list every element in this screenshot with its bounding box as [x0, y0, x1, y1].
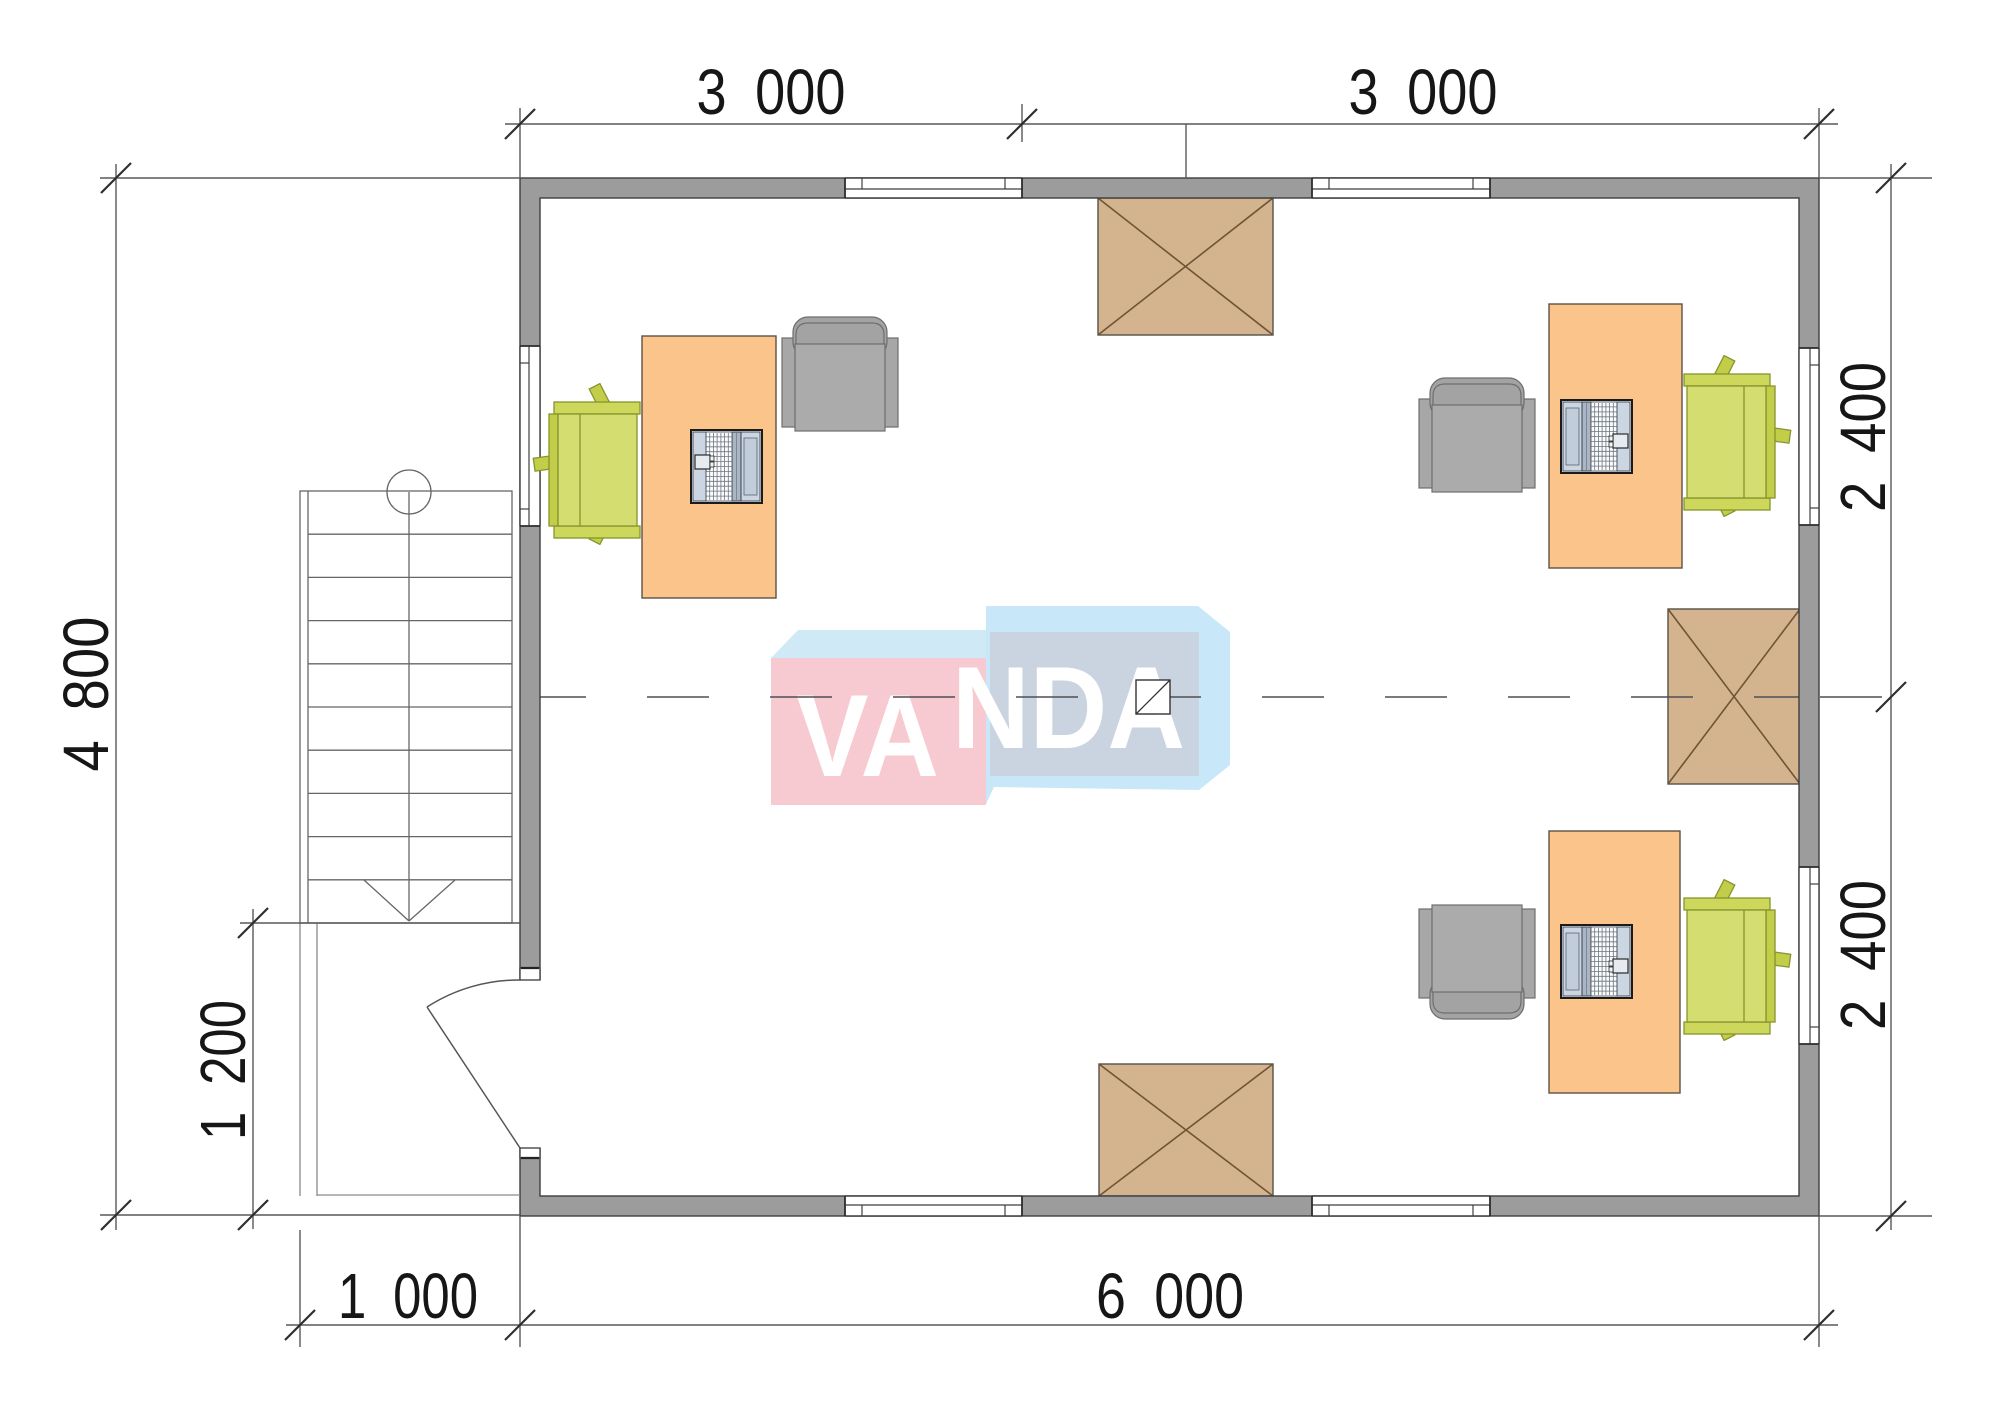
svg-text:2 400: 2 400 [1827, 880, 1899, 1030]
svg-text:3 000: 3 000 [697, 56, 846, 128]
svg-text:2 400: 2 400 [1827, 362, 1899, 512]
svg-text:1 200: 1 200 [187, 1000, 259, 1140]
svg-text:1 000: 1 000 [338, 1260, 478, 1332]
svg-text:4 800: 4 800 [50, 617, 122, 772]
svg-text:VA: VA [796, 670, 939, 801]
svg-text:3 000: 3 000 [1349, 56, 1498, 128]
svg-text:6 000: 6 000 [1096, 1260, 1244, 1332]
